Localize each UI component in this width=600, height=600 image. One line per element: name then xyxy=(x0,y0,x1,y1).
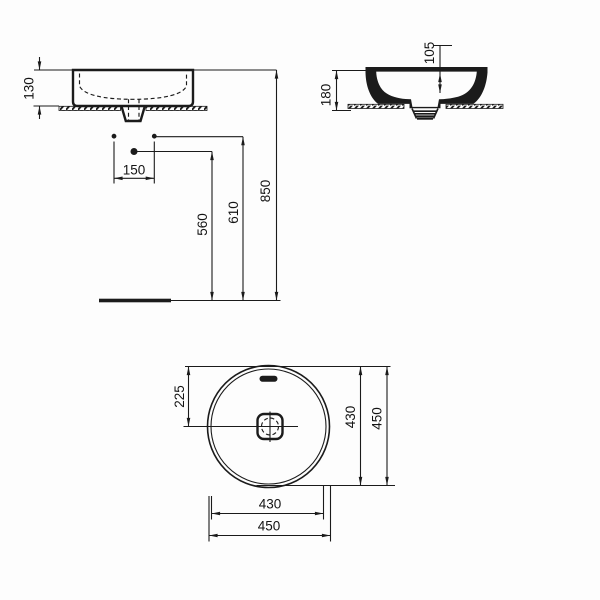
fixing-hole-left xyxy=(112,134,117,139)
plan-view: 225 430 450 430 xyxy=(172,366,395,542)
dimension-150: 150 xyxy=(114,142,154,184)
technical-drawing-page: 130 150 560 610 xyxy=(0,0,600,600)
dim-label-130: 130 xyxy=(22,77,37,100)
dimension-450-vertical: 450 xyxy=(370,367,389,486)
dim-label-225: 225 xyxy=(172,385,187,408)
front-view: 130 150 560 610 xyxy=(22,57,281,302)
dim-label-430-vertical: 430 xyxy=(343,406,358,429)
dim-label-560: 560 xyxy=(195,213,210,236)
dim-label-105: 105 xyxy=(422,42,437,65)
drain-trap-front xyxy=(122,106,145,121)
dim-label-150: 150 xyxy=(123,163,146,178)
dim-label-450-horizontal: 450 xyxy=(258,519,281,534)
dim-label-450-vertical: 450 xyxy=(370,407,385,430)
countertop-hatch-left xyxy=(59,106,121,110)
side-section-view: 105 180 xyxy=(319,42,504,119)
dimension-130: 130 xyxy=(22,57,60,119)
dim-label-610: 610 xyxy=(226,201,241,224)
bowl-hidden-contour xyxy=(80,74,187,100)
overflow-slot xyxy=(260,376,278,382)
dim-label-850: 850 xyxy=(258,180,273,203)
countertop-hatch-right xyxy=(446,104,503,108)
dimension-430-horizontal: 430 xyxy=(212,486,324,520)
dimension-850: 850 xyxy=(258,70,278,301)
dim-label-180: 180 xyxy=(319,84,334,107)
dim-label-430-horizontal: 430 xyxy=(259,496,282,511)
basin-front-outline xyxy=(73,70,193,106)
basin-section-profile xyxy=(366,67,488,108)
countertop-hatch-right xyxy=(146,106,207,110)
dimension-560: 560 xyxy=(195,152,214,301)
dimension-430-vertical: 430 xyxy=(343,367,362,486)
washbasin-technical-drawing: 130 150 560 610 xyxy=(0,0,600,600)
countertop-hatch-left xyxy=(348,104,404,108)
dimension-610: 610 xyxy=(226,137,245,301)
dimension-225: 225 xyxy=(172,367,190,427)
floor-line-thick xyxy=(99,299,171,303)
drain-tailpiece xyxy=(412,109,438,119)
